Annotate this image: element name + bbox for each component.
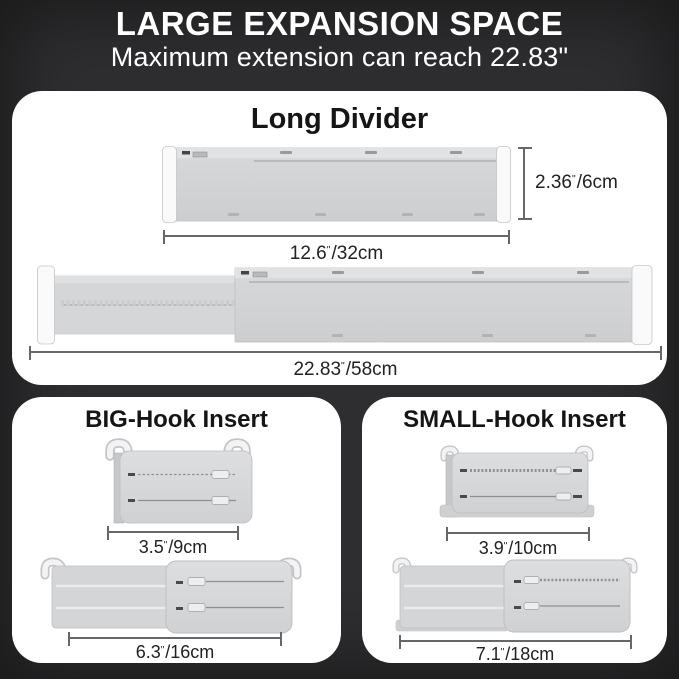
long-divider-title: Long Divider bbox=[12, 103, 667, 136]
banner-title: LARGE EXPANSION SPACE bbox=[0, 6, 679, 42]
dim-inches: 7.1 bbox=[476, 644, 501, 664]
dim-inches: 3.5 bbox=[139, 537, 164, 557]
dim-cm: /18cm bbox=[505, 644, 554, 664]
big-compact-dimension-line bbox=[107, 531, 239, 533]
dim-cm: /6cm bbox=[577, 172, 618, 193]
dim-inches: 2.36 bbox=[535, 172, 572, 193]
inch-mark: " bbox=[164, 540, 168, 551]
long-divider-panel: Long Divider 2.36"/6cm 12.6"/32cm bbox=[12, 91, 667, 385]
compact-width-dimension-line bbox=[163, 235, 510, 237]
dim-inches: 6.3 bbox=[136, 642, 161, 662]
big-hook-extended-image bbox=[36, 556, 306, 636]
small-hook-title: SMALL-Hook Insert bbox=[362, 406, 667, 434]
small-extended-dimension-line bbox=[399, 640, 632, 642]
product-infographic: LARGE EXPANSION SPACE Maximum extension … bbox=[0, 0, 679, 679]
inch-mark: " bbox=[161, 645, 165, 656]
height-dimension-label: 2.36"/6cm bbox=[535, 172, 618, 194]
banner: LARGE EXPANSION SPACE Maximum extension … bbox=[0, 0, 679, 72]
inch-mark: " bbox=[341, 361, 345, 372]
small-extended-dimension-label: 7.1"/18cm bbox=[405, 644, 625, 665]
dim-cm: /58cm bbox=[346, 359, 398, 380]
big-compact-dimension-label: 3.5"/9cm bbox=[75, 537, 271, 558]
banner-subtitle: Maximum extension can reach 22.83" bbox=[0, 42, 679, 72]
small-compact-dimension-line bbox=[446, 532, 590, 534]
big-hook-title: BIG-Hook Insert bbox=[12, 406, 341, 434]
small-hook-compact-image bbox=[432, 443, 602, 529]
long-divider-compact-image bbox=[162, 146, 511, 223]
inch-mark: " bbox=[572, 174, 576, 185]
big-extended-dimension-label: 6.3"/16cm bbox=[46, 642, 304, 663]
height-dimension-line bbox=[523, 147, 525, 220]
small-hook-extended-image bbox=[388, 554, 642, 640]
dim-cm: /9cm bbox=[168, 537, 207, 557]
extended-width-dimension-line bbox=[29, 351, 662, 353]
inch-mark: " bbox=[501, 647, 505, 658]
compact-width-dimension-label: 12.6"/32cm bbox=[163, 243, 510, 265]
dim-cm: /16cm bbox=[165, 642, 214, 662]
long-divider-extended-image bbox=[37, 265, 653, 345]
small-hook-panel: SMALL-Hook Insert 3.9"/10cm bbox=[362, 397, 667, 663]
inch-mark: " bbox=[504, 541, 508, 552]
inch-mark: " bbox=[327, 245, 331, 256]
big-extended-dimension-line bbox=[68, 637, 282, 639]
dim-cm: /32cm bbox=[331, 243, 383, 264]
extended-width-dimension-label: 22.83"/58cm bbox=[29, 359, 662, 381]
dim-inches: 22.83 bbox=[293, 359, 341, 380]
dim-inches: 12.6 bbox=[290, 243, 327, 264]
big-hook-compact-image bbox=[88, 437, 266, 529]
big-hook-panel: BIG-Hook Insert 3.5"/9cm bbox=[12, 397, 341, 663]
